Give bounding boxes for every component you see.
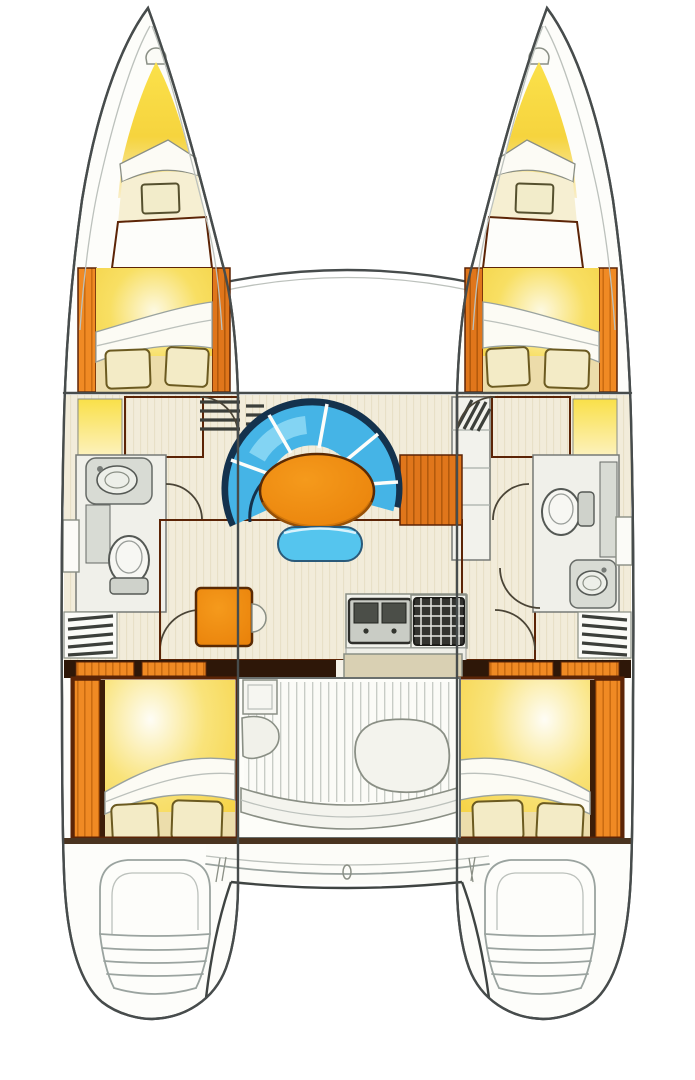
headboard-shelf — [561, 662, 619, 676]
door-gap — [336, 660, 344, 678]
starboard-head — [533, 455, 619, 612]
cockpit-door-sill — [344, 654, 462, 678]
faucet — [391, 628, 396, 633]
counter-column — [600, 462, 617, 557]
port-side-shelf — [78, 399, 122, 457]
headboard-shelf — [489, 662, 553, 676]
faucet — [97, 466, 103, 472]
port-hull-locker — [63, 520, 79, 572]
inter-hull-gap — [206, 882, 489, 998]
forward-crossbeam-inner — [222, 278, 473, 292]
starboard-hull-locker — [616, 517, 632, 565]
toilet — [109, 536, 149, 584]
headboard-shelf — [142, 662, 206, 676]
cockpit — [238, 678, 460, 838]
salon-floor-starboard — [400, 455, 462, 525]
faucet — [601, 567, 606, 572]
starboard-aft-cabin — [458, 678, 623, 843]
sink — [97, 466, 137, 494]
sink-basin-left — [354, 603, 378, 623]
counter-column — [86, 505, 110, 563]
starboard-boarding-steps — [578, 612, 631, 658]
port-aft-cabin — [72, 678, 237, 843]
chart-table — [196, 588, 252, 646]
toilet-tank — [110, 578, 148, 594]
port-boarding-steps — [64, 612, 117, 658]
toilet — [542, 489, 580, 535]
cockpit-seat-starboard — [355, 719, 449, 792]
headboard-shelf — [76, 662, 134, 676]
aft-deck-edge — [64, 838, 631, 844]
sink — [577, 571, 607, 595]
port-head — [76, 455, 166, 612]
toilet-tank — [578, 492, 594, 526]
catamaran-floorplan-image — [0, 0, 695, 1080]
faucet — [363, 628, 368, 633]
starboard-side-shelf — [573, 399, 617, 457]
aft-beam-deck — [206, 844, 489, 884]
floorplan-svg — [0, 0, 695, 1080]
sink-basin-right — [382, 603, 406, 623]
